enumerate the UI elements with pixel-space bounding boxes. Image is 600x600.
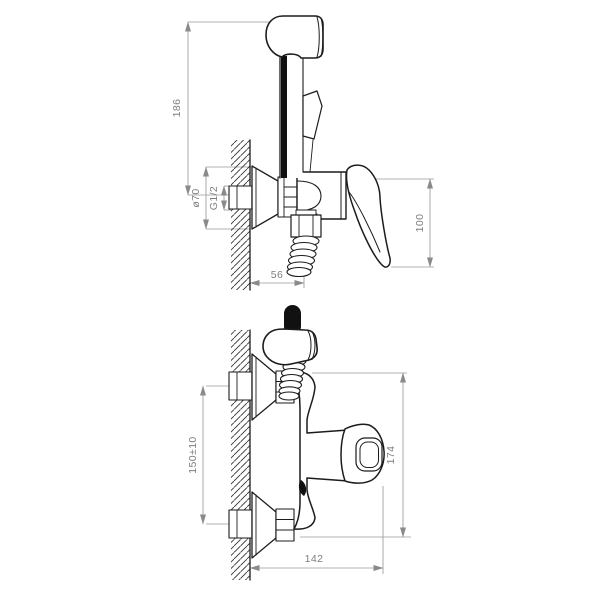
wall-section <box>231 140 250 290</box>
dim-label-56: 56 <box>271 269 283 281</box>
lever-handle <box>346 165 390 267</box>
wall-pipe-bottom <box>229 510 252 538</box>
mounting-nut-bottom <box>276 509 294 541</box>
dim-label-150: 150±10 <box>187 436 199 473</box>
escutcheon-top <box>252 354 276 420</box>
escutcheon <box>252 166 278 229</box>
dim-label-dia70: ø70 <box>190 188 202 207</box>
trigger-button <box>303 91 322 139</box>
dim-label-142: 142 <box>305 553 324 565</box>
sprayer-head <box>266 16 323 58</box>
escutcheon-bottom <box>252 492 276 558</box>
dim-label-186: 186 <box>171 99 183 118</box>
dim-label-174: 174 <box>385 446 397 465</box>
dim-label-g12: G1/2 <box>208 186 220 210</box>
technical-drawing-page: 186 ø70 G1/2 100 56 <box>0 0 600 600</box>
wall-section-front <box>231 330 250 580</box>
drawing-canvas: 186 ø70 G1/2 100 56 <box>0 0 600 600</box>
side-view: 186 ø70 G1/2 100 56 <box>171 16 434 290</box>
front-view: 150±10 174 142 <box>187 305 411 580</box>
wall-hatch <box>231 330 250 580</box>
lever-knob-front <box>341 424 384 483</box>
wall-hatch <box>231 140 250 290</box>
dim-label-100: 100 <box>414 214 426 233</box>
sprayer-head-front <box>263 329 317 365</box>
mixer-body-front <box>294 372 348 529</box>
dimension-connection-thread: G1/2 <box>208 186 231 210</box>
handle-shade-stripe <box>281 56 287 178</box>
wall-pipe <box>229 186 252 209</box>
wall-pipe-top <box>229 372 252 400</box>
mounting-nut <box>278 177 297 217</box>
hose-coil <box>287 236 319 277</box>
